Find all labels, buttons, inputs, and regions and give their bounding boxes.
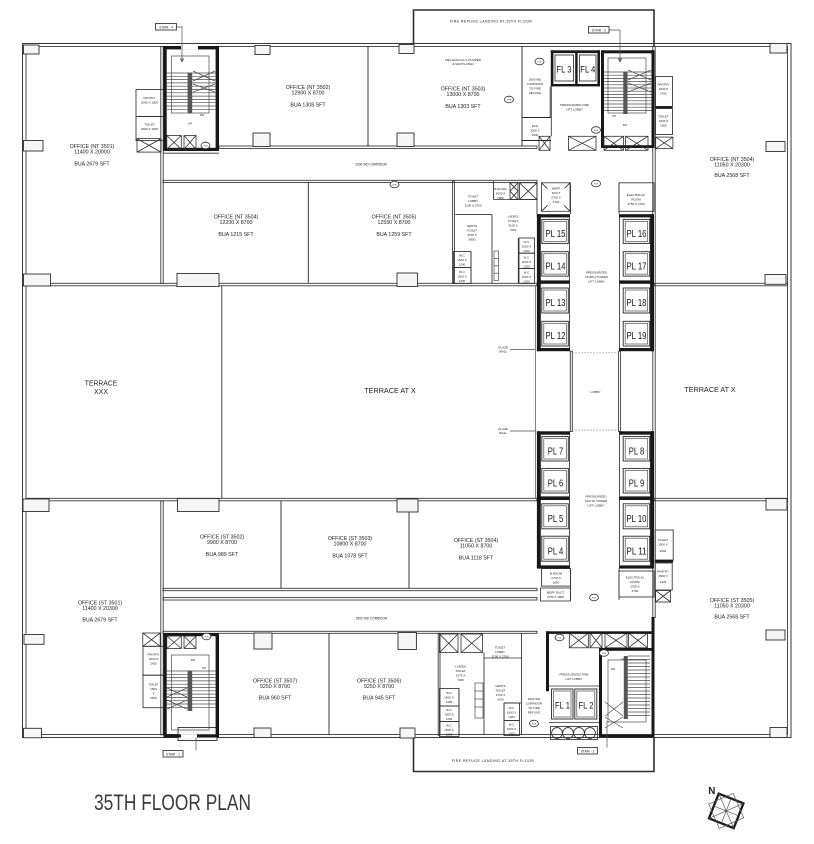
svg-text:W.C: W.C [524,240,530,244]
svg-text:N: N [708,786,715,797]
svg-text:TO FIRE: TO FIRE [528,706,540,710]
svg-text:3100 X 2700: 3100 X 2700 [464,204,481,208]
svg-text:2500: 2500 [150,696,157,700]
svg-text:1200: 1200 [459,279,466,283]
svg-text:FL 1: FL 1 [555,701,570,712]
svg-text:DUCT: DUCT [552,191,560,195]
svg-text:PL 17: PL 17 [627,262,647,273]
svg-text:B.ROOM: B.ROOM [550,572,563,576]
svg-text:1800: 1800 [497,196,504,200]
svg-text:W.C: W.C [509,723,515,727]
svg-text:PRESSURIZED: PRESSURIZED [586,271,608,275]
svg-text:PL 18: PL 18 [627,298,647,309]
svg-text:12200 X 8700: 12200 X 8700 [220,220,253,226]
svg-text:12550 X 8700: 12550 X 8700 [378,220,411,226]
svg-text:LOBBY: LOBBY [468,199,478,203]
svg-text:2700 X: 2700 X [551,576,561,580]
svg-text:PL 19: PL 19 [627,331,647,342]
svg-text:1200: 1200 [523,265,530,269]
svg-text:13000 X 8700: 13000 X 8700 [447,92,480,98]
svg-text:UP: UP [612,114,616,118]
svg-text:11400 X 20300: 11400 X 20300 [82,606,118,612]
svg-text:1500 X: 1500 X [457,275,467,279]
svg-text:WALL: WALL [499,350,507,354]
svg-text:2500: 2500 [660,549,667,553]
svg-text:LOBBY: LOBBY [495,650,505,654]
svg-text:FL 3: FL 3 [557,65,572,76]
svg-text:11050 X 20300: 11050 X 20300 [714,604,750,610]
svg-text:& VENTILATED: & VENTILATED [452,62,474,66]
svg-text:2000 WD: 2000 WD [529,78,542,82]
svg-text:7000: 7000 [510,228,517,232]
svg-text:BUA 1303 SFT: BUA 1303 SFT [445,104,481,110]
svg-text:NORTH TOWER: NORTH TOWER [585,275,608,279]
svg-text:XXX: XXX [94,389,108,396]
svg-text:5675: 5675 [497,698,504,702]
svg-text:W.C: W.C [446,691,452,695]
svg-text:ROOM: ROOM [630,580,640,584]
svg-text:2600: 2600 [532,133,539,137]
svg-text:9250 X 8700: 9250 X 8700 [260,684,290,690]
svg-text:1200: 1200 [508,732,515,736]
svg-text:2500: 2500 [660,124,667,128]
svg-text:PRESSURIZED: PRESSURIZED [585,495,607,499]
svg-text:BUA 945 SFT: BUA 945 SFT [363,696,396,702]
svg-text:BUA 1118 SFT: BUA 1118 SFT [459,556,494,562]
svg-text:9250 X 8700: 9250 X 8700 [364,684,394,690]
svg-text:GENTS: GENTS [495,684,505,688]
svg-text:PL 13: PL 13 [546,298,566,309]
svg-text:BUA 1308 SFT: BUA 1308 SFT [290,103,326,109]
svg-text:MEPF DUCT: MEPF DUCT [547,591,565,595]
svg-text:PL 11: PL 11 [627,546,647,557]
svg-text:PL 16: PL 16 [627,229,647,240]
svg-text:UP: UP [188,122,192,126]
svg-text:2425: 2425 [150,662,157,666]
svg-text:FL 4: FL 4 [580,65,595,76]
svg-text:1500 X: 1500 X [507,711,517,715]
svg-text:1500 X: 1500 X [522,275,532,279]
svg-text:B.ROOM: B.ROOM [494,187,507,191]
svg-text:BUA 2679 SFT: BUA 2679 SFT [74,162,110,168]
svg-text:9900 X 8700: 9900 X 8700 [207,540,237,546]
svg-text:PL 10: PL 10 [627,514,647,525]
svg-text:1200: 1200 [446,733,453,737]
svg-text:3700 X: 3700 X [467,233,477,237]
svg-text:1500 X: 1500 X [658,574,668,578]
svg-text:PL 15: PL 15 [546,229,566,240]
svg-text:ROOM: ROOM [631,198,641,202]
svg-text:LADIES: LADIES [508,215,519,219]
svg-text:1200: 1200 [459,263,466,267]
svg-text:ELECTRICAL: ELECTRICAL [627,193,646,197]
svg-text:W.C: W.C [446,708,452,712]
svg-text:TOILET: TOILET [144,123,155,127]
svg-text:BUA 2679 SFT: BUA 2679 SFT [82,618,118,624]
svg-text:3750 X 2700: 3750 X 2700 [627,202,644,206]
svg-text:PL 4: PL 4 [548,546,564,557]
svg-text:2700 X: 2700 X [630,585,640,589]
svg-text:UP: UP [621,657,625,661]
svg-text:1500 X: 1500 X [444,728,454,732]
svg-text:PRESSURIZED FIRE: PRESSURIZED FIRE [560,103,589,107]
svg-text:TERRACE AT X: TERRACE AT X [364,388,416,395]
svg-text:1500 X: 1500 X [659,87,669,91]
svg-text:TOILET: TOILET [658,115,669,119]
svg-text:1500 X: 1500 X [444,696,454,700]
svg-text:PANTRY: PANTRY [657,570,669,574]
svg-text:TOILET: TOILET [495,689,506,693]
svg-text:TERRACE: TERRACE [85,381,118,388]
svg-text:2700: 2700 [632,589,639,593]
svg-text:1500: 1500 [150,687,157,691]
svg-text:CORRIDOR: CORRIDOR [526,702,543,706]
svg-text:PL 7: PL 7 [548,446,564,457]
svg-text:PANTRY: PANTRY [144,96,156,100]
svg-text:BUA 2568 SFT: BUA 2568 SFT [714,173,750,179]
svg-text:1500 X: 1500 X [658,543,668,547]
svg-text:STAIR - 1: STAIR - 1 [166,753,180,757]
svg-text:2000 X 1800: 2000 X 1800 [141,101,158,105]
svg-text:PRESSURIZED FIRE: PRESSURIZED FIRE [559,673,588,677]
svg-text:2700 X 1800: 2700 X 1800 [547,595,564,599]
svg-text:1500 X: 1500 X [522,260,532,264]
svg-text:DN: DN [191,658,195,662]
svg-text:MEPF: MEPF [552,187,561,191]
svg-text:3175 X: 3175 X [456,674,466,678]
svg-text:SOUTH TOWER: SOUTH TOWER [585,499,608,503]
svg-text:7000: 7000 [457,678,464,682]
svg-text:2700: 2700 [553,200,560,204]
svg-text:1200: 1200 [523,280,530,284]
svg-text:REFUGE: REFUGE [529,91,542,95]
svg-text:12900 X 8700: 12900 X 8700 [292,91,325,97]
svg-text:ECH: ECH [532,124,538,128]
svg-text:2000 X: 2000 X [496,192,506,196]
svg-text:2000 WD: 2000 WD [528,697,541,701]
svg-text:DN: DN [611,667,615,671]
svg-text:FL 2: FL 2 [579,701,594,712]
svg-text:3700 X 2700: 3700 X 2700 [491,655,508,659]
svg-text:2700 X: 2700 X [551,196,561,200]
svg-text:2500 WD CORRIDOR: 2500 WD CORRIDOR [356,617,388,621]
svg-text:TOILET: TOILET [508,219,519,223]
svg-text:PL 8: PL 8 [629,446,645,457]
svg-text:1500 X: 1500 X [444,713,454,717]
svg-text:LADIES: LADIES [455,665,466,669]
svg-text:1500 X: 1500 X [507,727,517,731]
svg-text:2425: 2425 [660,92,667,96]
svg-text:REFUGE: REFUGE [528,711,541,715]
svg-text:PL 12: PL 12 [546,331,566,342]
svg-text:LIFT LOBBY: LIFT LOBBY [588,280,605,284]
svg-text:11050 X 20300: 11050 X 20300 [714,163,750,169]
svg-text:ELECTRICAL: ELECTRICAL [626,576,645,580]
svg-text:3700 X: 3700 X [496,693,506,697]
svg-text:2000 WD CORRIDOR: 2000 WD CORRIDOR [355,163,387,167]
svg-text:3100 X: 3100 X [508,224,518,228]
svg-text:DN: DN [200,113,204,117]
svg-text:TERRACE AT X: TERRACE AT X [684,387,736,394]
svg-text:W.C: W.C [509,706,515,710]
svg-text:LOBBY: LOBBY [590,390,600,394]
svg-text:2000 X: 2000 X [530,129,540,133]
svg-text:PL 6: PL 6 [548,478,564,489]
svg-text:W.C: W.C [524,256,530,260]
svg-text:LIFT LOBBY: LIFT LOBBY [566,677,583,681]
svg-text:LIFT LOBBY: LIFT LOBBY [588,504,605,508]
svg-text:GENTS: GENTS [467,224,477,228]
svg-text:PL 5: PL 5 [548,514,564,525]
svg-text:1500 X: 1500 X [522,245,532,249]
svg-text:2425: 2425 [660,580,667,584]
svg-text:DN: DN [623,123,627,127]
svg-text:TOILET: TOILET [455,669,466,673]
svg-text:W.C: W.C [459,270,465,274]
svg-text:BUA 989 SFT: BUA 989 SFT [206,552,239,558]
svg-text:BUA 1215 SFT: BUA 1215 SFT [218,232,254,238]
svg-text:1500 X: 1500 X [659,119,669,123]
svg-text:TOILET: TOILET [148,683,159,687]
svg-text:BUA 1078 SFT: BUA 1078 SFT [332,554,368,560]
svg-text:FIRE REFUGE LANDING AT 35TH F: FIRE REFUGE LANDING AT 35TH FLOOR [452,759,535,763]
svg-text:PL 9: PL 9 [629,478,645,489]
svg-text:11050 X 8700: 11050 X 8700 [460,544,493,550]
svg-text:LIFT LOBBY: LIFT LOBBY [566,108,583,112]
svg-text:STAIR - 2: STAIR - 2 [581,750,595,754]
svg-text:1200: 1200 [508,715,515,719]
svg-text:1500 X: 1500 X [149,657,159,661]
svg-text:1200: 1200 [446,700,453,704]
svg-text:TOILET: TOILET [468,195,479,199]
svg-text:UP: UP [202,666,206,670]
svg-text:WALL: WALL [499,431,507,435]
svg-text:35TH FLOOR PLAN: 35TH FLOOR PLAN [94,790,251,815]
svg-text:TOILET: TOILET [467,229,478,233]
svg-text:FIRE REFUGE LANDING AT 35TH F: FIRE REFUGE LANDING AT 35TH FLOOR [450,20,533,24]
svg-text:1800: 1800 [553,581,560,585]
svg-text:STAIR - 4: STAIR - 4 [159,26,173,30]
svg-text:X: X [152,692,154,696]
svg-text:BUA 2568 SFT: BUA 2568 SFT [714,615,750,621]
svg-text:BUA 1259 SFT: BUA 1259 SFT [376,232,412,238]
svg-text:W.C: W.C [459,254,465,258]
svg-text:1200: 1200 [446,717,453,721]
svg-text:STAIR - 3: STAIR - 3 [592,29,606,33]
svg-text:W.C: W.C [524,271,530,275]
svg-text:2000 X 1500: 2000 X 1500 [141,127,158,131]
svg-text:10800 X 8700: 10800 X 8700 [334,542,367,548]
svg-text:TOILET: TOILET [495,646,506,650]
svg-text:PL 14: PL 14 [546,262,566,273]
svg-text:W.C: W.C [446,724,452,728]
svg-text:BUA 960 SFT: BUA 960 SFT [259,696,292,702]
svg-text:1500 X: 1500 X [457,258,467,262]
svg-text:11400 X 20000: 11400 X 20000 [74,150,110,156]
svg-text:1200: 1200 [523,249,530,253]
svg-text:TOILET: TOILET [658,538,669,542]
svg-text:PANTRY: PANTRY [658,83,670,87]
svg-text:5600: 5600 [469,238,476,242]
svg-text:CORRIDOR: CORRIDOR [527,82,544,86]
svg-text:TO FIRE: TO FIRE [529,87,541,91]
svg-text:PANTRY: PANTRY [148,653,160,657]
